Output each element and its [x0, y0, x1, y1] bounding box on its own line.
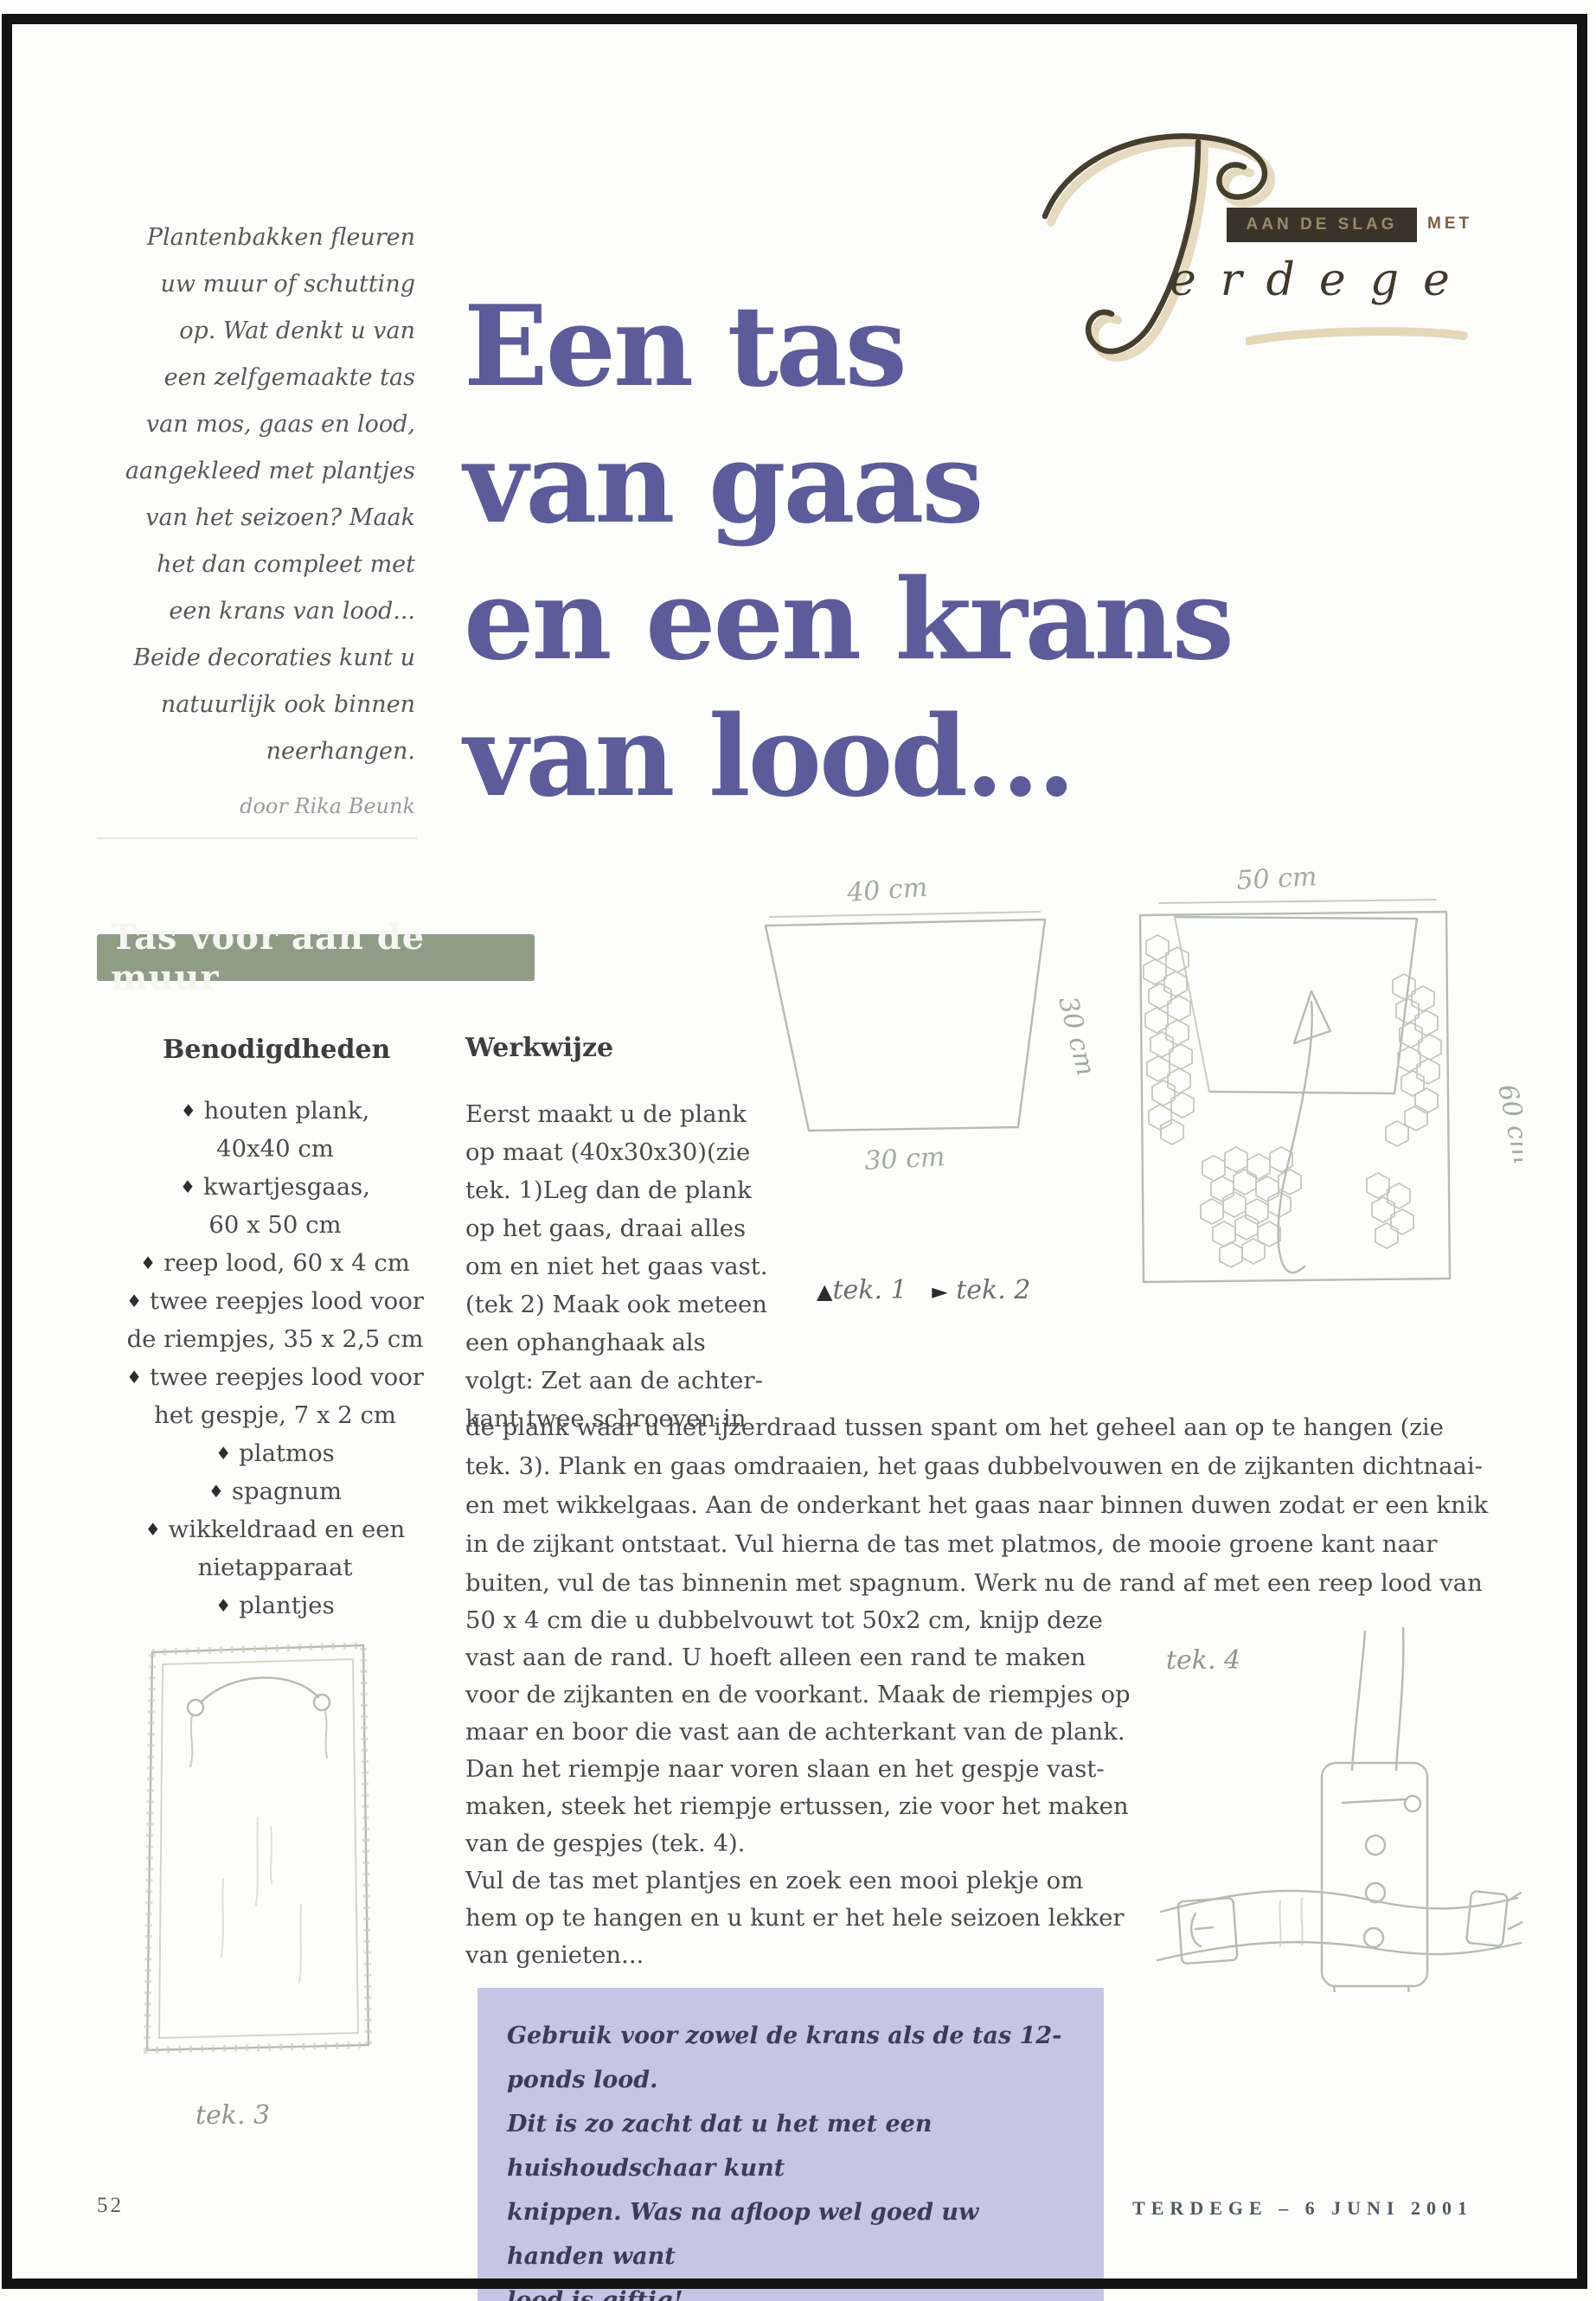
fig2-dim-side: 60 cm	[1491, 1081, 1522, 1166]
badge-label: AAN DE SLAG	[1247, 215, 1398, 234]
title-line: en een krans	[464, 552, 1329, 689]
diamond-bullet-icon: ♦	[208, 1481, 224, 1502]
diamond-bullet-icon: ♦	[180, 1176, 195, 1197]
fig2-label: tek. 2	[956, 1275, 1030, 1305]
page-title: Een tas van gaas en een krans van lood..…	[464, 279, 1329, 825]
method-paragraph-narrow: Eerst maakt u de plank op maat (40x30x30…	[465, 1095, 846, 1438]
badge-aan-de-slag: AAN DE SLAG	[1227, 208, 1417, 242]
list-item: ♦twee reepjes lood voor de riempjes, 35 …	[87, 1282, 464, 1358]
list-item: ♦platmos	[87, 1434, 464, 1472]
section-banner-label: Tas voor aan de muur	[97, 917, 535, 998]
note-box: Gebruik voor zowel de krans als de tas 1…	[478, 1988, 1104, 2301]
mesh-left	[1144, 935, 1194, 1144]
method-heading: Werkwijze	[465, 1033, 613, 1063]
method-paragraph-medium: 50 x 4 cm die u dubbelvouwt tot 50x2 cm,…	[465, 1602, 1209, 1974]
diamond-bullet-icon: ♦	[126, 1291, 142, 1311]
list-item: ♦spagnum	[87, 1472, 464, 1510]
mesh-right	[1386, 974, 1441, 1146]
fig3-label: tek. 3	[195, 2100, 270, 2131]
triangle-right-icon: ►	[932, 1279, 947, 1304]
materials-heading: Benodigdheden	[163, 1035, 390, 1065]
mesh-bottom-right	[1367, 1173, 1413, 1248]
wood-grain	[221, 1818, 301, 1983]
diamond-bullet-icon: ♦	[140, 1253, 156, 1273]
fold-arrow-icon	[1279, 991, 1330, 1272]
diamond-bullet-icon: ♦	[126, 1367, 142, 1388]
diamond-bullet-icon: ♦	[215, 1595, 231, 1616]
fig12-caption: ▲tek. 1 ► tek. 2	[817, 1275, 1030, 1305]
diamond-bullet-icon: ♦	[145, 1519, 161, 1540]
note-text: Gebruik voor zowel de krans als de tas 1…	[478, 1988, 1104, 2301]
list-item: ♦twee reepjes lood voor het gespje, 7 x …	[87, 1358, 464, 1434]
hanging-wire	[188, 1677, 330, 1766]
magazine-page: Plantenbakken fleuren uw muur of schutti…	[0, 0, 1596, 2301]
list-item: ♦wikkeldraad en een nietapparaat	[87, 1510, 464, 1586]
fig2-dim-top: 50 cm	[1236, 862, 1318, 896]
fig3-plank-back-drawing	[128, 1619, 388, 2091]
list-item: ♦reep lood, 60 x 4 cm	[87, 1244, 464, 1282]
fig2-gaas-drawing: 50 cm 60 cm	[1107, 862, 1522, 1320]
diamond-bullet-icon: ♦	[181, 1100, 196, 1121]
section-banner: Tas voor aan de muur	[97, 934, 535, 981]
byline-rule	[97, 837, 417, 839]
list-item: ♦kwartjesgaas, 60 x 50 cm	[87, 1168, 464, 1244]
title-line: Een tas	[464, 279, 1329, 415]
intro-paragraph: Plantenbakken fleuren uw muur of schutti…	[111, 215, 415, 775]
footer-text: TERDEGE – 6 JUNI 2001	[1132, 2197, 1473, 2220]
diamond-bullet-icon: ♦	[215, 1443, 231, 1464]
list-item: ♦houten plank, 40x40 cm	[87, 1092, 464, 1168]
fig1-dim-bottom: 30 cm	[864, 1142, 946, 1176]
title-line: van lood...	[464, 689, 1329, 825]
badge-suffix: MET	[1427, 215, 1472, 234]
fig1-dim-top: 40 cm	[845, 873, 928, 908]
byline: door Rika Beunk	[111, 794, 415, 818]
fig4-buckle-drawing	[1151, 1625, 1522, 1992]
materials-list: ♦houten plank, 40x40 cm ♦kwartjesgaas, 6…	[87, 1092, 464, 1625]
mesh-bottom	[1201, 1147, 1301, 1267]
title-line: van gaas	[464, 415, 1329, 552]
fig1-dim-side: 30 cm	[1052, 993, 1099, 1079]
method-paragraph-wide: de plank waar u het ijzerdraad tussen sp…	[465, 1408, 1555, 1603]
page-number: 52	[97, 2194, 124, 2218]
